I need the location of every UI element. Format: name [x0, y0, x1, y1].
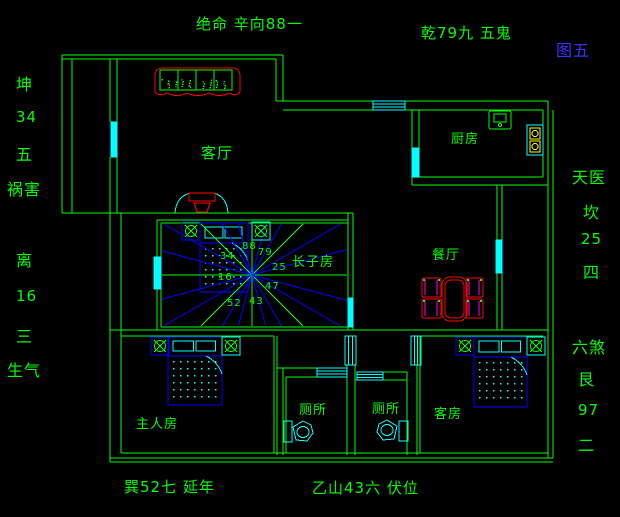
side-gen: 艮: [578, 372, 595, 388]
star-number-25: 25: [272, 263, 287, 273]
toilet-fixture-right: [377, 420, 408, 441]
compass-star-rays: [162, 224, 347, 326]
room-kitchen: 厨房: [451, 133, 479, 146]
fan-symbol: [182, 222, 200, 240]
side-li: 离: [16, 253, 33, 269]
room-master: 主人房: [136, 418, 178, 431]
kitchen-sink: [489, 111, 511, 129]
side-kun: 坤: [16, 77, 33, 93]
side-huohai: 祸害: [7, 182, 41, 198]
kitchen-stove: [527, 125, 543, 155]
side-tianyi: 天医: [572, 170, 606, 186]
sofa: [155, 68, 240, 96]
side-kun-number: 34: [16, 110, 37, 125]
annotation-top-right: 乾79九 五鬼: [421, 26, 512, 41]
cad-canvas: 绝命 辛向88一乾79九 五鬼图五坤34五祸害离16三生气天医坎25四六煞艮97…: [0, 0, 620, 517]
room-guest: 客房: [434, 408, 462, 421]
side-li-number: 16: [16, 289, 37, 304]
figure-number: 图五: [556, 43, 590, 59]
side-kun-five: 五: [16, 147, 33, 163]
star-number-34: 34: [220, 252, 235, 262]
fan-symbol: [151, 337, 169, 355]
star-number-47: 47: [265, 282, 280, 292]
star-number-43: 43: [249, 297, 264, 307]
dining-chair: [466, 278, 483, 297]
annotation-bottom-left: 巽52七 延年: [124, 480, 215, 495]
side-kan-four: 四: [583, 265, 600, 281]
dining-chair: [422, 278, 441, 297]
side-liusha: 六煞: [572, 340, 606, 356]
bed-master: [168, 337, 222, 405]
room-living: 客厅: [201, 146, 233, 161]
door-bars: [111, 122, 502, 327]
fan-symbol: [527, 337, 545, 355]
star-number-88: 88: [242, 242, 257, 252]
room-toilet-right: 厕所: [372, 403, 400, 416]
annotation-top-center: 绝命 辛向88一: [196, 17, 303, 32]
side-kan-number: 25: [581, 232, 602, 247]
tv-cabinet: [175, 193, 228, 213]
room-toilet-left: 厕所: [299, 404, 327, 417]
annotation-bottom-center: 乙山43六 伏位: [312, 481, 419, 496]
side-shengqi: 生气: [7, 363, 41, 379]
fan-symbol: [222, 337, 240, 355]
star-number-52: 52: [227, 299, 242, 309]
side-gen-number: 97: [578, 403, 599, 418]
door-bar: [111, 122, 117, 157]
door-bar: [496, 240, 502, 273]
window-hatch: [357, 372, 383, 380]
window-hatch: [373, 101, 405, 110]
window-hatches: [317, 101, 421, 380]
bed-guest: [474, 337, 527, 407]
fan-symbol: [456, 337, 474, 355]
dining-table: [442, 277, 467, 321]
window-hatch: [345, 336, 356, 365]
door-bar: [348, 298, 353, 327]
dining-chairs: [422, 278, 483, 318]
side-li-three: 三: [16, 329, 33, 345]
dining-chair: [466, 299, 483, 318]
star-number-79: 79: [258, 248, 273, 258]
window-hatch: [317, 368, 347, 377]
side-kan: 坎: [583, 205, 600, 221]
door-bar: [154, 257, 161, 289]
room-dining: 餐厅: [432, 249, 460, 262]
door-bar: [412, 148, 419, 177]
toilet-fixture-left: [284, 421, 313, 442]
room-eldest-son: 长子房: [292, 256, 334, 269]
star-number-16: 16: [218, 273, 233, 283]
side-gen-two: 二: [578, 438, 595, 454]
dining-chair: [422, 299, 441, 318]
fan-symbol: [252, 222, 270, 240]
